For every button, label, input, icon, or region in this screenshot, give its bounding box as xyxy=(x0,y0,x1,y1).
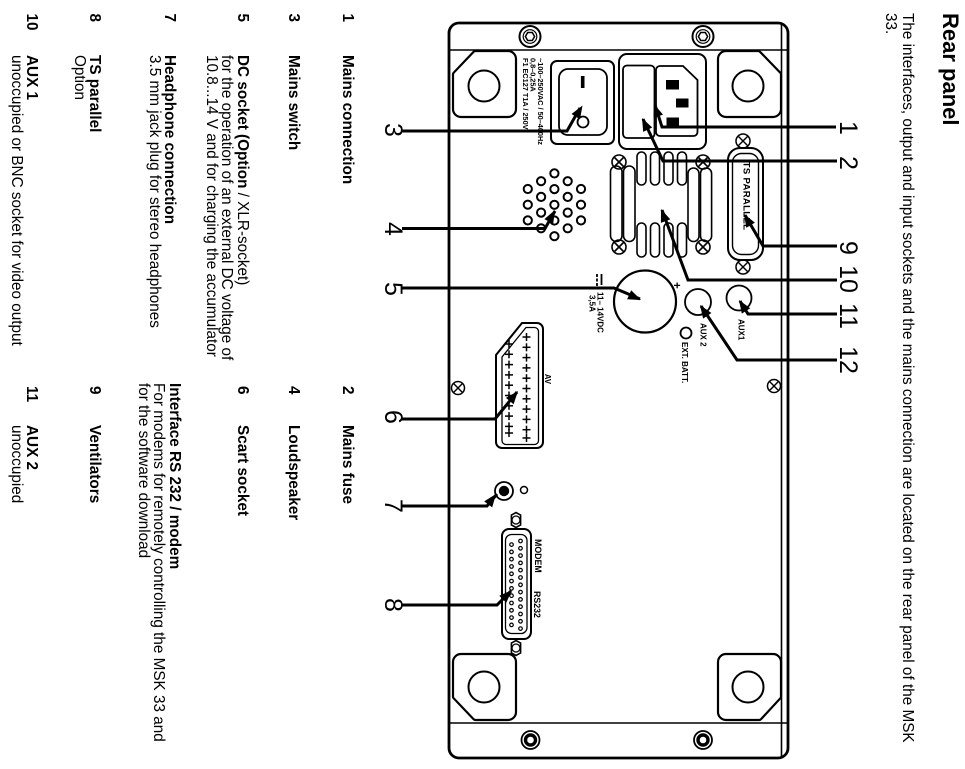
svg-text:3: 3 xyxy=(379,123,407,137)
svg-text:10: 10 xyxy=(834,265,862,293)
svg-text:MODEM: MODEM xyxy=(533,539,543,573)
svg-text:AUX 2: AUX 2 xyxy=(699,323,708,347)
svg-text:4: 4 xyxy=(379,222,407,236)
svg-text:2: 2 xyxy=(834,156,862,170)
svg-text:+: + xyxy=(670,282,682,289)
svg-text:11: 11 xyxy=(834,303,862,329)
svg-text:5: 5 xyxy=(379,282,407,296)
svg-text:12: 12 xyxy=(834,346,862,374)
svg-text:EXT. BATT.: EXT. BATT. xyxy=(680,342,689,383)
svg-text:F1 EC127 T1A / 250V: F1 EC127 T1A / 250V xyxy=(521,58,530,130)
svg-text:11– 14VDC: 11– 14VDC xyxy=(596,292,605,333)
svg-text:AV: AV xyxy=(543,374,552,385)
svg-text:1: 1 xyxy=(834,121,862,135)
svg-text:3,5A: 3,5A xyxy=(587,295,596,312)
svg-text:7: 7 xyxy=(379,499,407,513)
svg-text:8: 8 xyxy=(379,598,407,612)
svg-text:9: 9 xyxy=(834,241,862,255)
svg-text:RS232: RS232 xyxy=(532,591,542,618)
svg-text:6: 6 xyxy=(379,410,407,424)
svg-text:AUX1: AUX1 xyxy=(737,319,746,341)
